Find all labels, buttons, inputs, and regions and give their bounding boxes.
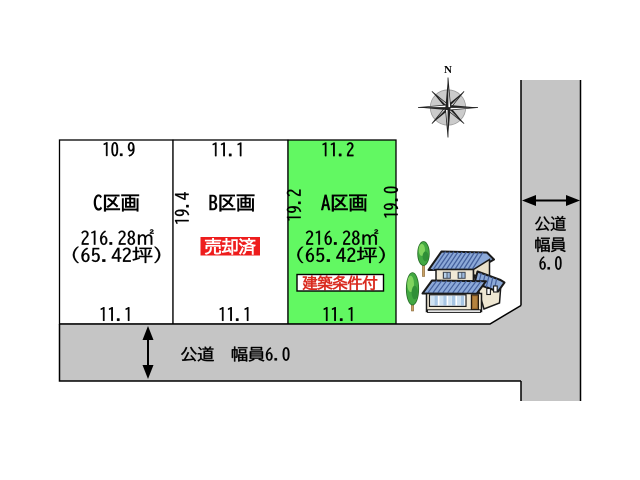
svg-text:N: N [444, 64, 452, 76]
